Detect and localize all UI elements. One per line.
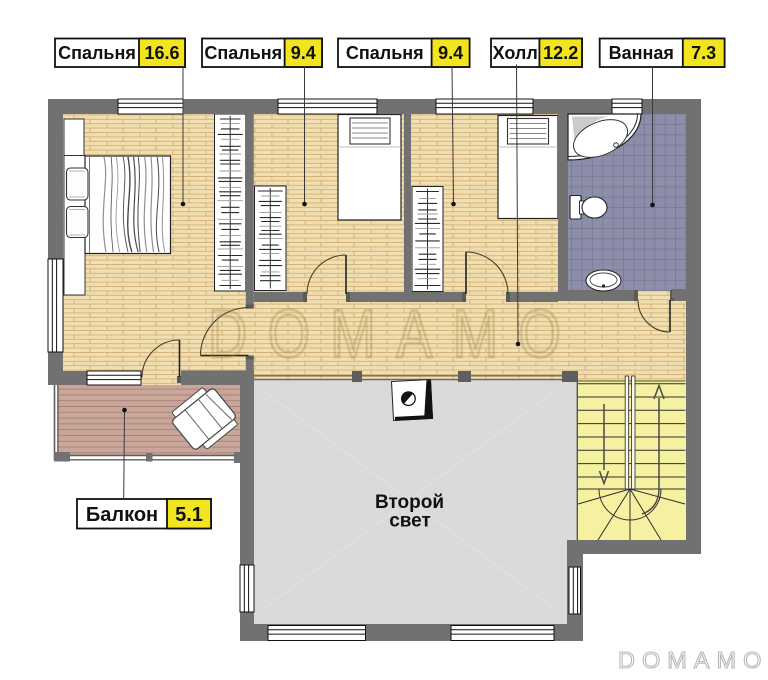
svg-text:свет: свет bbox=[389, 511, 431, 532]
svg-text:Холл: Холл bbox=[493, 43, 538, 63]
svg-text:9.4: 9.4 bbox=[291, 43, 316, 63]
svg-text:5.1: 5.1 bbox=[175, 504, 203, 526]
svg-text:9.4: 9.4 bbox=[438, 43, 463, 63]
svg-text:Спальня: Спальня bbox=[346, 43, 424, 63]
svg-text:12.2: 12.2 bbox=[543, 43, 578, 63]
svg-text:Спальня: Спальня bbox=[204, 43, 282, 63]
svg-text:Балкон: Балкон bbox=[86, 504, 158, 526]
svg-text:7.3: 7.3 bbox=[691, 43, 716, 63]
svg-text:16.6: 16.6 bbox=[144, 43, 179, 63]
svg-text:DOMAMO: DOMAMO bbox=[208, 296, 581, 372]
svg-text:DOMAMO: DOMAMO bbox=[618, 647, 768, 673]
svg-text:Спальня: Спальня bbox=[58, 43, 136, 63]
svg-text:Ванная: Ванная bbox=[609, 43, 674, 63]
